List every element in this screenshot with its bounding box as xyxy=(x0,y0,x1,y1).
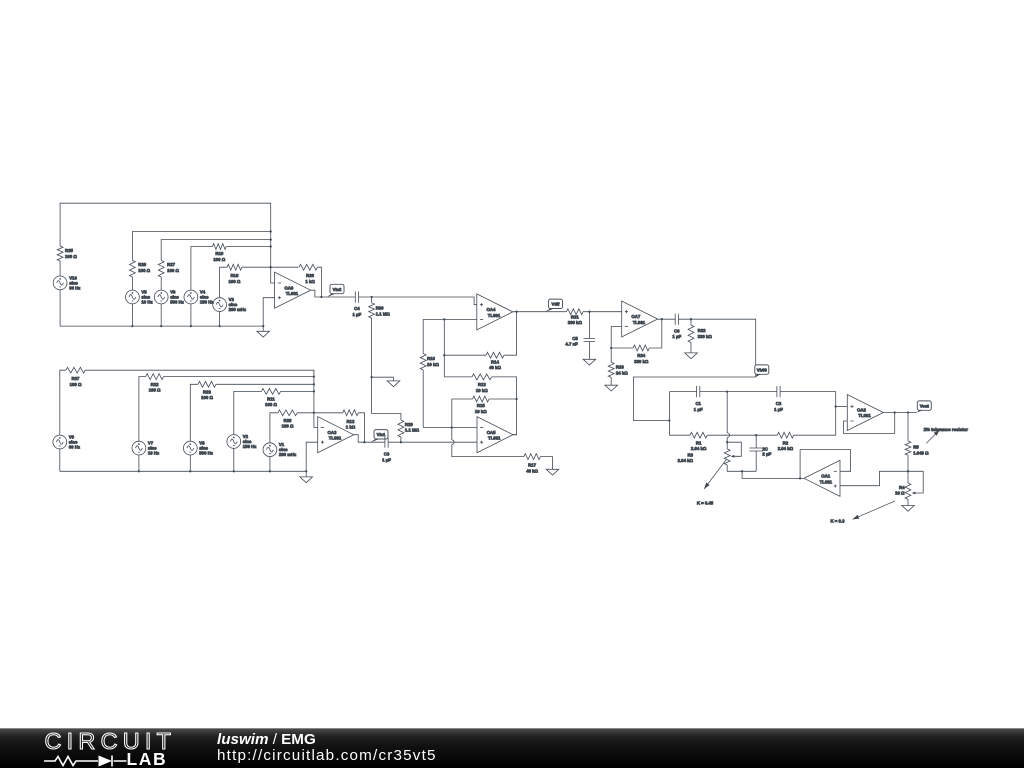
svg-text:R29: R29 xyxy=(405,422,413,427)
svg-text:C2: C2 xyxy=(776,401,782,406)
svg-text:R30: R30 xyxy=(376,306,384,311)
svg-text:R20: R20 xyxy=(306,273,314,278)
svg-text:4.7 nF: 4.7 nF xyxy=(565,341,578,346)
svg-text:R35: R35 xyxy=(65,248,73,253)
svg-text:C5: C5 xyxy=(572,336,578,341)
svg-text:TL081: TL081 xyxy=(329,436,342,441)
svg-text:TL081: TL081 xyxy=(286,291,299,296)
svg-text:OA7: OA7 xyxy=(631,314,640,319)
svg-text:60 Hz: 60 Hz xyxy=(69,444,80,449)
svg-text:R14: R14 xyxy=(491,359,499,364)
svg-text:R22: R22 xyxy=(151,382,159,387)
svg-text:1 μF: 1 μF xyxy=(672,334,681,339)
svg-text:K = 0.45: K = 0.45 xyxy=(697,501,714,506)
svg-text:R2: R2 xyxy=(783,440,789,445)
svg-text:K = 0.3: K = 0.3 xyxy=(831,518,846,523)
svg-text:150 Hz: 150 Hz xyxy=(243,444,257,449)
svg-text:24 kΩ: 24 kΩ xyxy=(616,371,628,376)
svg-text:OA5: OA5 xyxy=(487,430,496,435)
svg-text:R32: R32 xyxy=(698,328,706,333)
svg-text:R11: R11 xyxy=(267,396,275,401)
svg-text:OA4: OA4 xyxy=(487,307,496,312)
svg-text:R18: R18 xyxy=(230,273,238,278)
svg-text:R26: R26 xyxy=(138,262,146,267)
svg-text:Vin2: Vin2 xyxy=(333,287,342,292)
svg-text:TL081: TL081 xyxy=(820,479,833,484)
svg-text:100 Ω: 100 Ω xyxy=(213,257,225,262)
svg-text:150 Hz: 150 Hz xyxy=(200,299,214,304)
svg-text:2% tolerance resistor: 2% tolerance resistor xyxy=(924,427,969,432)
svg-text:C1: C1 xyxy=(695,401,701,406)
svg-text:100 Ω: 100 Ω xyxy=(138,268,150,273)
svg-text:OA1: OA1 xyxy=(821,474,830,479)
svg-text:R16: R16 xyxy=(427,356,435,361)
svg-text:Vb60: Vb60 xyxy=(757,368,768,373)
svg-text:60 Hz: 60 Hz xyxy=(69,285,80,290)
svg-text:Vin1: Vin1 xyxy=(377,432,386,437)
svg-text:TL081: TL081 xyxy=(858,413,871,418)
svg-text:LAB: LAB xyxy=(127,749,168,769)
svg-text:200 mHz: 200 mHz xyxy=(229,307,246,312)
svg-text:R12: R12 xyxy=(347,419,355,424)
svg-text:R31: R31 xyxy=(571,314,579,319)
svg-text:2.64 kΩ: 2.64 kΩ xyxy=(691,446,707,451)
svg-text:C3: C3 xyxy=(384,452,390,457)
svg-text:Vdif: Vdif xyxy=(552,302,561,307)
svg-text:1.049 Ω: 1.049 Ω xyxy=(913,450,929,455)
svg-text:100 Ω: 100 Ω xyxy=(282,424,294,429)
svg-text:100 Ω: 100 Ω xyxy=(265,402,277,407)
svg-text:100 Ω: 100 Ω xyxy=(167,268,179,273)
svg-text:1 μF: 1 μF xyxy=(774,407,783,412)
svg-text:2.64 kΩ: 2.64 kΩ xyxy=(678,458,694,463)
svg-text:TL081: TL081 xyxy=(488,313,501,318)
svg-text:R5: R5 xyxy=(913,444,919,449)
svg-text:300 kΩ: 300 kΩ xyxy=(568,320,583,325)
svg-text:TL081: TL081 xyxy=(633,320,646,325)
svg-text:R4: R4 xyxy=(899,485,905,490)
svg-text:R15: R15 xyxy=(477,403,485,408)
svg-text:1 kΩ: 1 kΩ xyxy=(346,425,356,430)
svg-text:10 Hz: 10 Hz xyxy=(148,450,159,455)
svg-text:OA2: OA2 xyxy=(857,407,866,412)
svg-text:OA3: OA3 xyxy=(328,430,337,435)
svg-text:TL081: TL081 xyxy=(488,436,501,441)
svg-text:10 kΩ: 10 kΩ xyxy=(475,409,487,414)
svg-text:2 μF: 2 μF xyxy=(762,452,771,457)
svg-text:C4: C4 xyxy=(354,306,360,311)
svg-text:R17: R17 xyxy=(528,463,536,468)
svg-text:1.1 MΩ: 1.1 MΩ xyxy=(376,311,391,316)
svg-text:100 Ω: 100 Ω xyxy=(201,395,213,400)
svg-text:2.64 kΩ: 2.64 kΩ xyxy=(778,446,794,451)
svg-text:R28: R28 xyxy=(284,418,292,423)
svg-text:C6: C6 xyxy=(674,328,680,333)
svg-text:100 Ω: 100 Ω xyxy=(70,382,82,387)
svg-text:1 μF: 1 μF xyxy=(352,312,361,317)
svg-text:100 Ω: 100 Ω xyxy=(65,254,77,259)
svg-text:40 kΩ: 40 kΩ xyxy=(489,365,501,370)
svg-text:10 kΩ: 10 kΩ xyxy=(476,388,488,393)
svg-text:R1: R1 xyxy=(696,440,702,445)
svg-text:R23: R23 xyxy=(203,389,211,394)
svg-text:R19: R19 xyxy=(215,251,223,256)
svg-text:100 Ω: 100 Ω xyxy=(228,279,240,284)
svg-text:OA6: OA6 xyxy=(284,285,293,290)
svg-text:R27: R27 xyxy=(167,262,175,267)
svg-text:1 μF: 1 μF xyxy=(694,407,703,412)
svg-text:330 kΩ: 330 kΩ xyxy=(634,359,649,364)
svg-text:R33: R33 xyxy=(616,365,624,370)
svg-text:R13: R13 xyxy=(478,382,486,387)
svg-text:200 mHz: 200 mHz xyxy=(279,452,296,457)
svg-text:R37: R37 xyxy=(72,376,80,381)
svg-text:1 kΩ: 1 kΩ xyxy=(305,279,315,284)
svg-text:R34: R34 xyxy=(637,353,645,358)
svg-text:10 Hz: 10 Hz xyxy=(141,299,152,304)
svg-text:100 Ω: 100 Ω xyxy=(149,388,161,393)
svg-text:330 kΩ: 330 kΩ xyxy=(698,334,713,339)
svg-text:10 Ω: 10 Ω xyxy=(895,491,905,496)
svg-text:500 Hz: 500 Hz xyxy=(170,299,184,304)
svg-text:Vout: Vout xyxy=(920,404,930,409)
svg-text:10 kΩ: 10 kΩ xyxy=(427,362,439,367)
svg-text:1 μF: 1 μF xyxy=(382,457,391,462)
svg-text:40 kΩ: 40 kΩ xyxy=(526,468,538,473)
svg-text:1.1 MΩ: 1.1 MΩ xyxy=(405,428,420,433)
svg-text:500 Hz: 500 Hz xyxy=(199,450,213,455)
